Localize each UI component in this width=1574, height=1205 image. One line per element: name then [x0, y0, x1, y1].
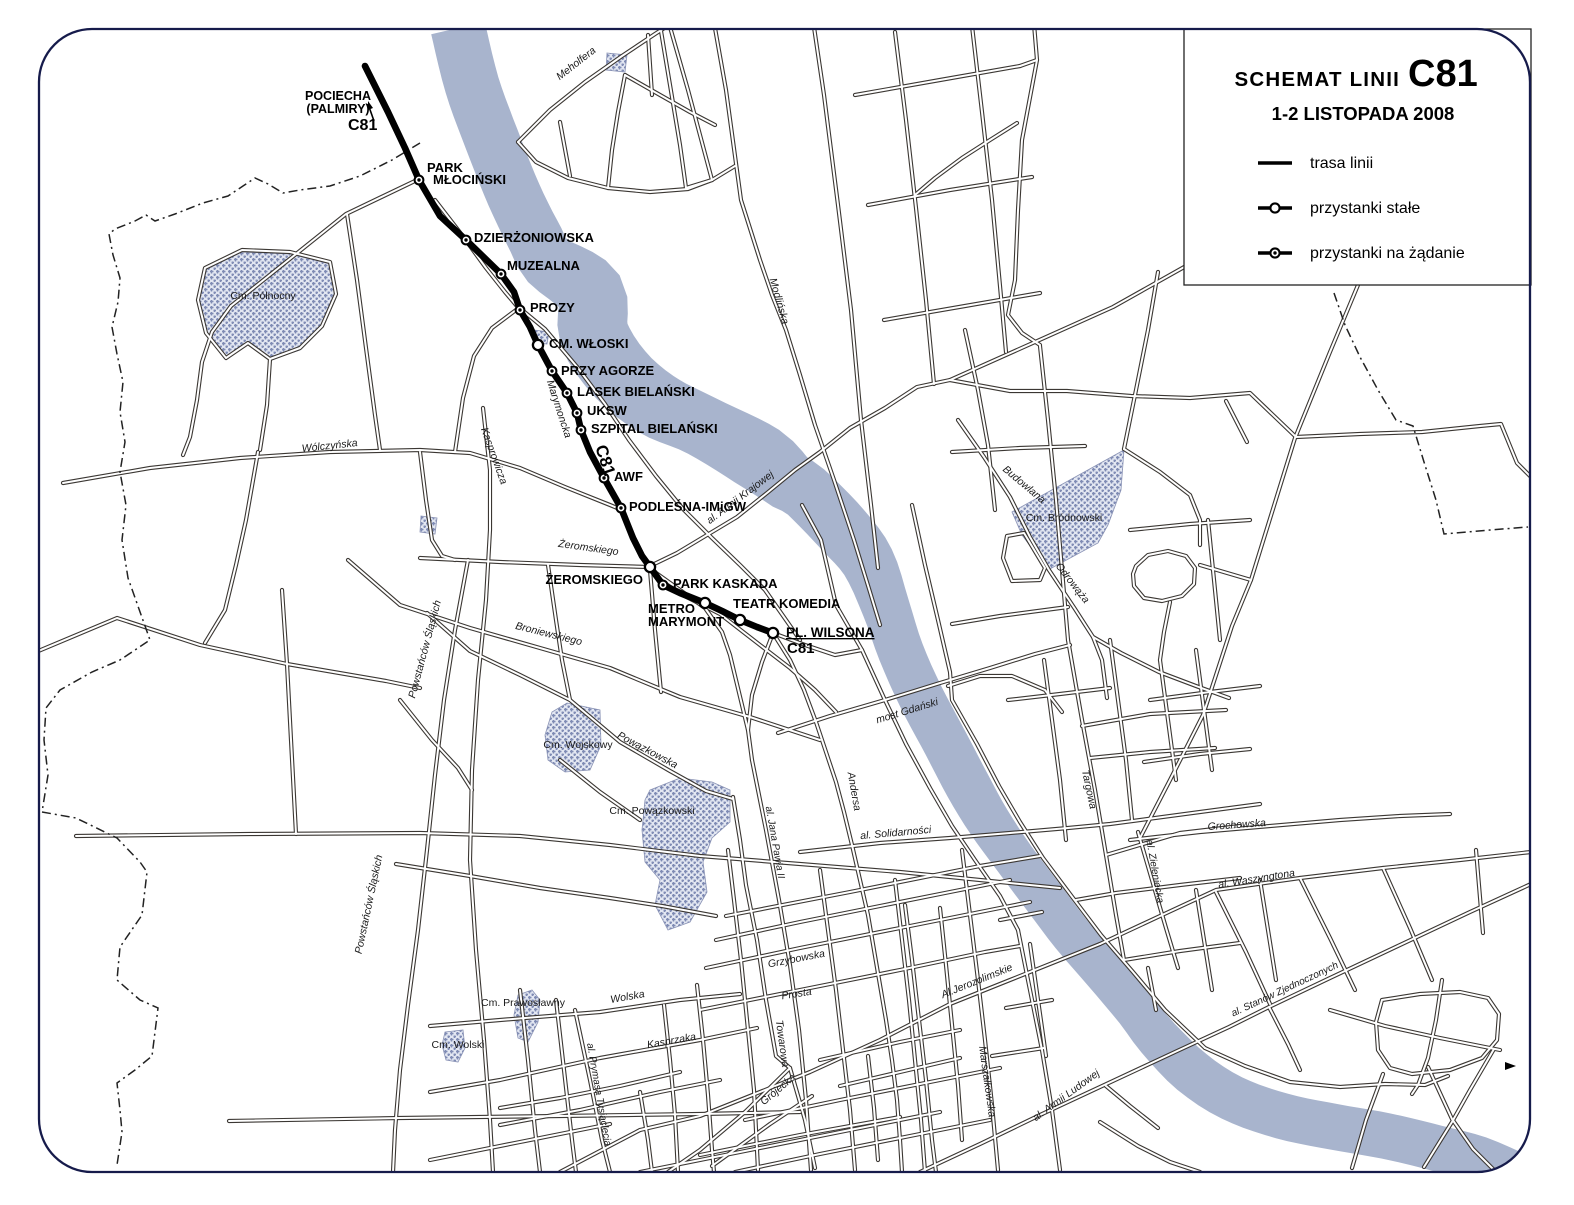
svg-text:1-2 LISTOPADA 2008: 1-2 LISTOPADA 2008 — [1272, 103, 1455, 124]
svg-text:DZIERŻONIOWSKA: DZIERŻONIOWSKA — [474, 230, 594, 245]
svg-text:MUZEALNA: MUZEALNA — [507, 258, 581, 273]
svg-text:trasa linii: trasa linii — [1310, 155, 1373, 172]
svg-text:SZPITAL BIELAŃSKI: SZPITAL BIELAŃSKI — [591, 421, 718, 436]
svg-text:Cm. Powązkowski: Cm. Powązkowski — [609, 805, 694, 817]
svg-text:SCHEMAT LINII: SCHEMAT LINII — [1234, 68, 1400, 91]
svg-text:PROZY: PROZY — [530, 300, 575, 315]
svg-text:PODLEŚNA-IMiGW: PODLEŚNA-IMiGW — [629, 499, 747, 514]
svg-text:(PALMIRY): (PALMIRY) — [306, 102, 369, 116]
svg-text:ŻEROMSKIEGO: ŻEROMSKIEGO — [545, 572, 643, 587]
svg-text:Cm. Wolski: Cm. Wolski — [432, 1039, 485, 1051]
svg-text:C81: C81 — [1408, 53, 1478, 95]
svg-text:Cm. Wojskowy: Cm. Wojskowy — [543, 739, 613, 751]
svg-text:TEATR KOMEDIA: TEATR KOMEDIA — [733, 596, 841, 611]
svg-text:MARYMONT: MARYMONT — [648, 614, 724, 629]
svg-text:Cm. Północny: Cm. Północny — [230, 290, 296, 302]
svg-text:MŁOCIŃSKI: MŁOCIŃSKI — [433, 172, 506, 187]
svg-text:przystanki stałe: przystanki stałe — [1310, 200, 1420, 217]
svg-text:UKSW: UKSW — [587, 403, 627, 418]
svg-text:przystanki na żądanie: przystanki na żądanie — [1310, 245, 1465, 262]
svg-text:C81: C81 — [348, 117, 377, 134]
svg-text:POCIECHA: POCIECHA — [305, 89, 371, 103]
svg-text:PL. WILSONA: PL. WILSONA — [786, 625, 875, 640]
svg-text:Cm. Prawosławny: Cm. Prawosławny — [481, 997, 566, 1009]
svg-text:PRZY AGORZE: PRZY AGORZE — [561, 363, 655, 378]
svg-text:C81: C81 — [787, 640, 815, 657]
svg-text:CM. WŁOSKI: CM. WŁOSKI — [549, 336, 628, 351]
svg-text:LASEK BIELAŃSKI: LASEK BIELAŃSKI — [577, 384, 695, 399]
svg-text:PARK KASKADA: PARK KASKADA — [673, 576, 778, 591]
svg-text:Cm. Bródnowski: Cm. Bródnowski — [1026, 512, 1102, 524]
